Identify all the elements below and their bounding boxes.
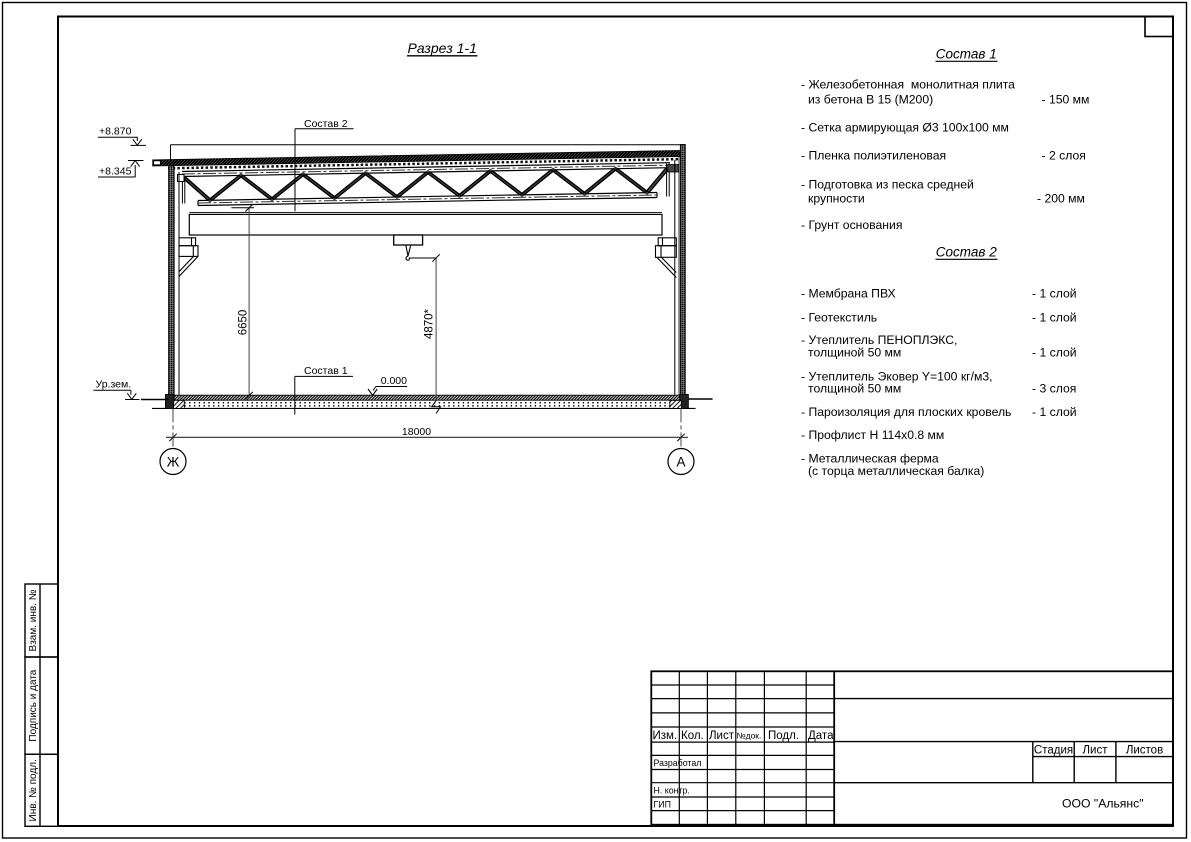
svg-text:- Железобетонная монолитная п: - Железобетонная монолитная плита [801, 78, 1015, 92]
svg-text:Дата: Дата [808, 730, 834, 742]
svg-text:толщиной 50 мм: толщиной 50 мм [808, 381, 901, 395]
svg-text:Взам. инв. №: Взам. инв. № [28, 589, 39, 651]
svg-text:Ур.зем.: Ур.зем. [96, 379, 132, 391]
svg-text:6650: 6650 [237, 310, 249, 336]
svg-text:- 1 слой: - 1 слой [1032, 405, 1077, 419]
svg-text:Листов: Листов [1126, 745, 1163, 757]
svg-text:18000: 18000 [402, 426, 431, 438]
svg-text:- 2 слоя: - 2 слоя [1042, 148, 1086, 162]
svg-text:+8.345: +8.345 [99, 165, 132, 177]
svg-text:(с торца металлическая балка): (с торца металлическая балка) [808, 464, 984, 478]
svg-text:- Сетка армирующая Ø3 100х100: - Сетка армирующая Ø3 100х100 мм [801, 121, 1009, 135]
svg-text:Состав 1: Состав 1 [304, 365, 348, 377]
svg-text:ООО "Альянс": ООО "Альянс" [1062, 797, 1144, 811]
svg-text:А: А [676, 455, 685, 470]
svg-text:Разрез 1-1: Разрез 1-1 [408, 40, 477, 56]
svg-text:Подл.: Подл. [768, 730, 799, 742]
svg-text:Состав 2: Состав 2 [936, 245, 997, 260]
svg-text:- Пароизоляция для плоских кро: - Пароизоляция для плоских кровель [801, 405, 1011, 419]
svg-text:Лист: Лист [709, 730, 735, 742]
svg-text:толщиной 50 мм: толщиной 50 мм [808, 345, 901, 359]
svg-text:Кол.: Кол. [681, 730, 704, 742]
svg-text:Состав 1: Состав 1 [936, 47, 997, 62]
svg-text:Изм.: Изм. [653, 730, 678, 742]
svg-text:из бетона В 15 (М200): из бетона В 15 (М200) [808, 93, 933, 107]
svg-text:Н. контр.: Н. контр. [654, 786, 690, 796]
svg-text:Состав 2: Состав 2 [304, 118, 348, 130]
svg-text:- 1 слой: - 1 слой [1032, 345, 1077, 359]
svg-text:- Мембрана ПВХ: - Мембрана ПВХ [801, 287, 896, 301]
svg-text:0.000: 0.000 [381, 375, 407, 387]
svg-text:Подпись и дата: Подпись и дата [28, 669, 39, 741]
svg-text:- Геотекстиль: - Геотекстиль [801, 311, 877, 325]
svg-text:- 1 слой: - 1 слой [1032, 287, 1077, 301]
svg-text:- 3 слоя: - 3 слоя [1032, 381, 1076, 395]
svg-text:Стадия: Стадия [1034, 745, 1073, 757]
svg-text:+8.870: +8.870 [99, 126, 132, 138]
svg-text:- 200 мм: - 200 мм [1037, 192, 1085, 206]
svg-text:- 150 мм: - 150 мм [1042, 93, 1090, 107]
svg-text:- Профлист Н 114х0.8 мм: - Профлист Н 114х0.8 мм [801, 428, 944, 442]
svg-text:№док.: №док. [737, 731, 762, 741]
svg-text:ГИП: ГИП [654, 800, 671, 810]
svg-text:Инв. № подл.: Инв. № подл. [28, 759, 39, 821]
svg-text:- Пленка полиэтиленовая: - Пленка полиэтиленовая [801, 148, 946, 162]
svg-text:- 1 слой: - 1 слой [1032, 311, 1077, 325]
svg-text:Разработал: Разработал [654, 758, 702, 768]
svg-text:4870*: 4870* [423, 308, 435, 339]
svg-text:Ж: Ж [167, 455, 180, 470]
svg-text:- Грунт основания: - Грунт основания [801, 218, 902, 232]
svg-text:крупности: крупности [808, 192, 865, 206]
svg-text:- Подготовка из песка средней: - Подготовка из песка средней [801, 178, 974, 192]
svg-text:Лист: Лист [1083, 745, 1109, 757]
